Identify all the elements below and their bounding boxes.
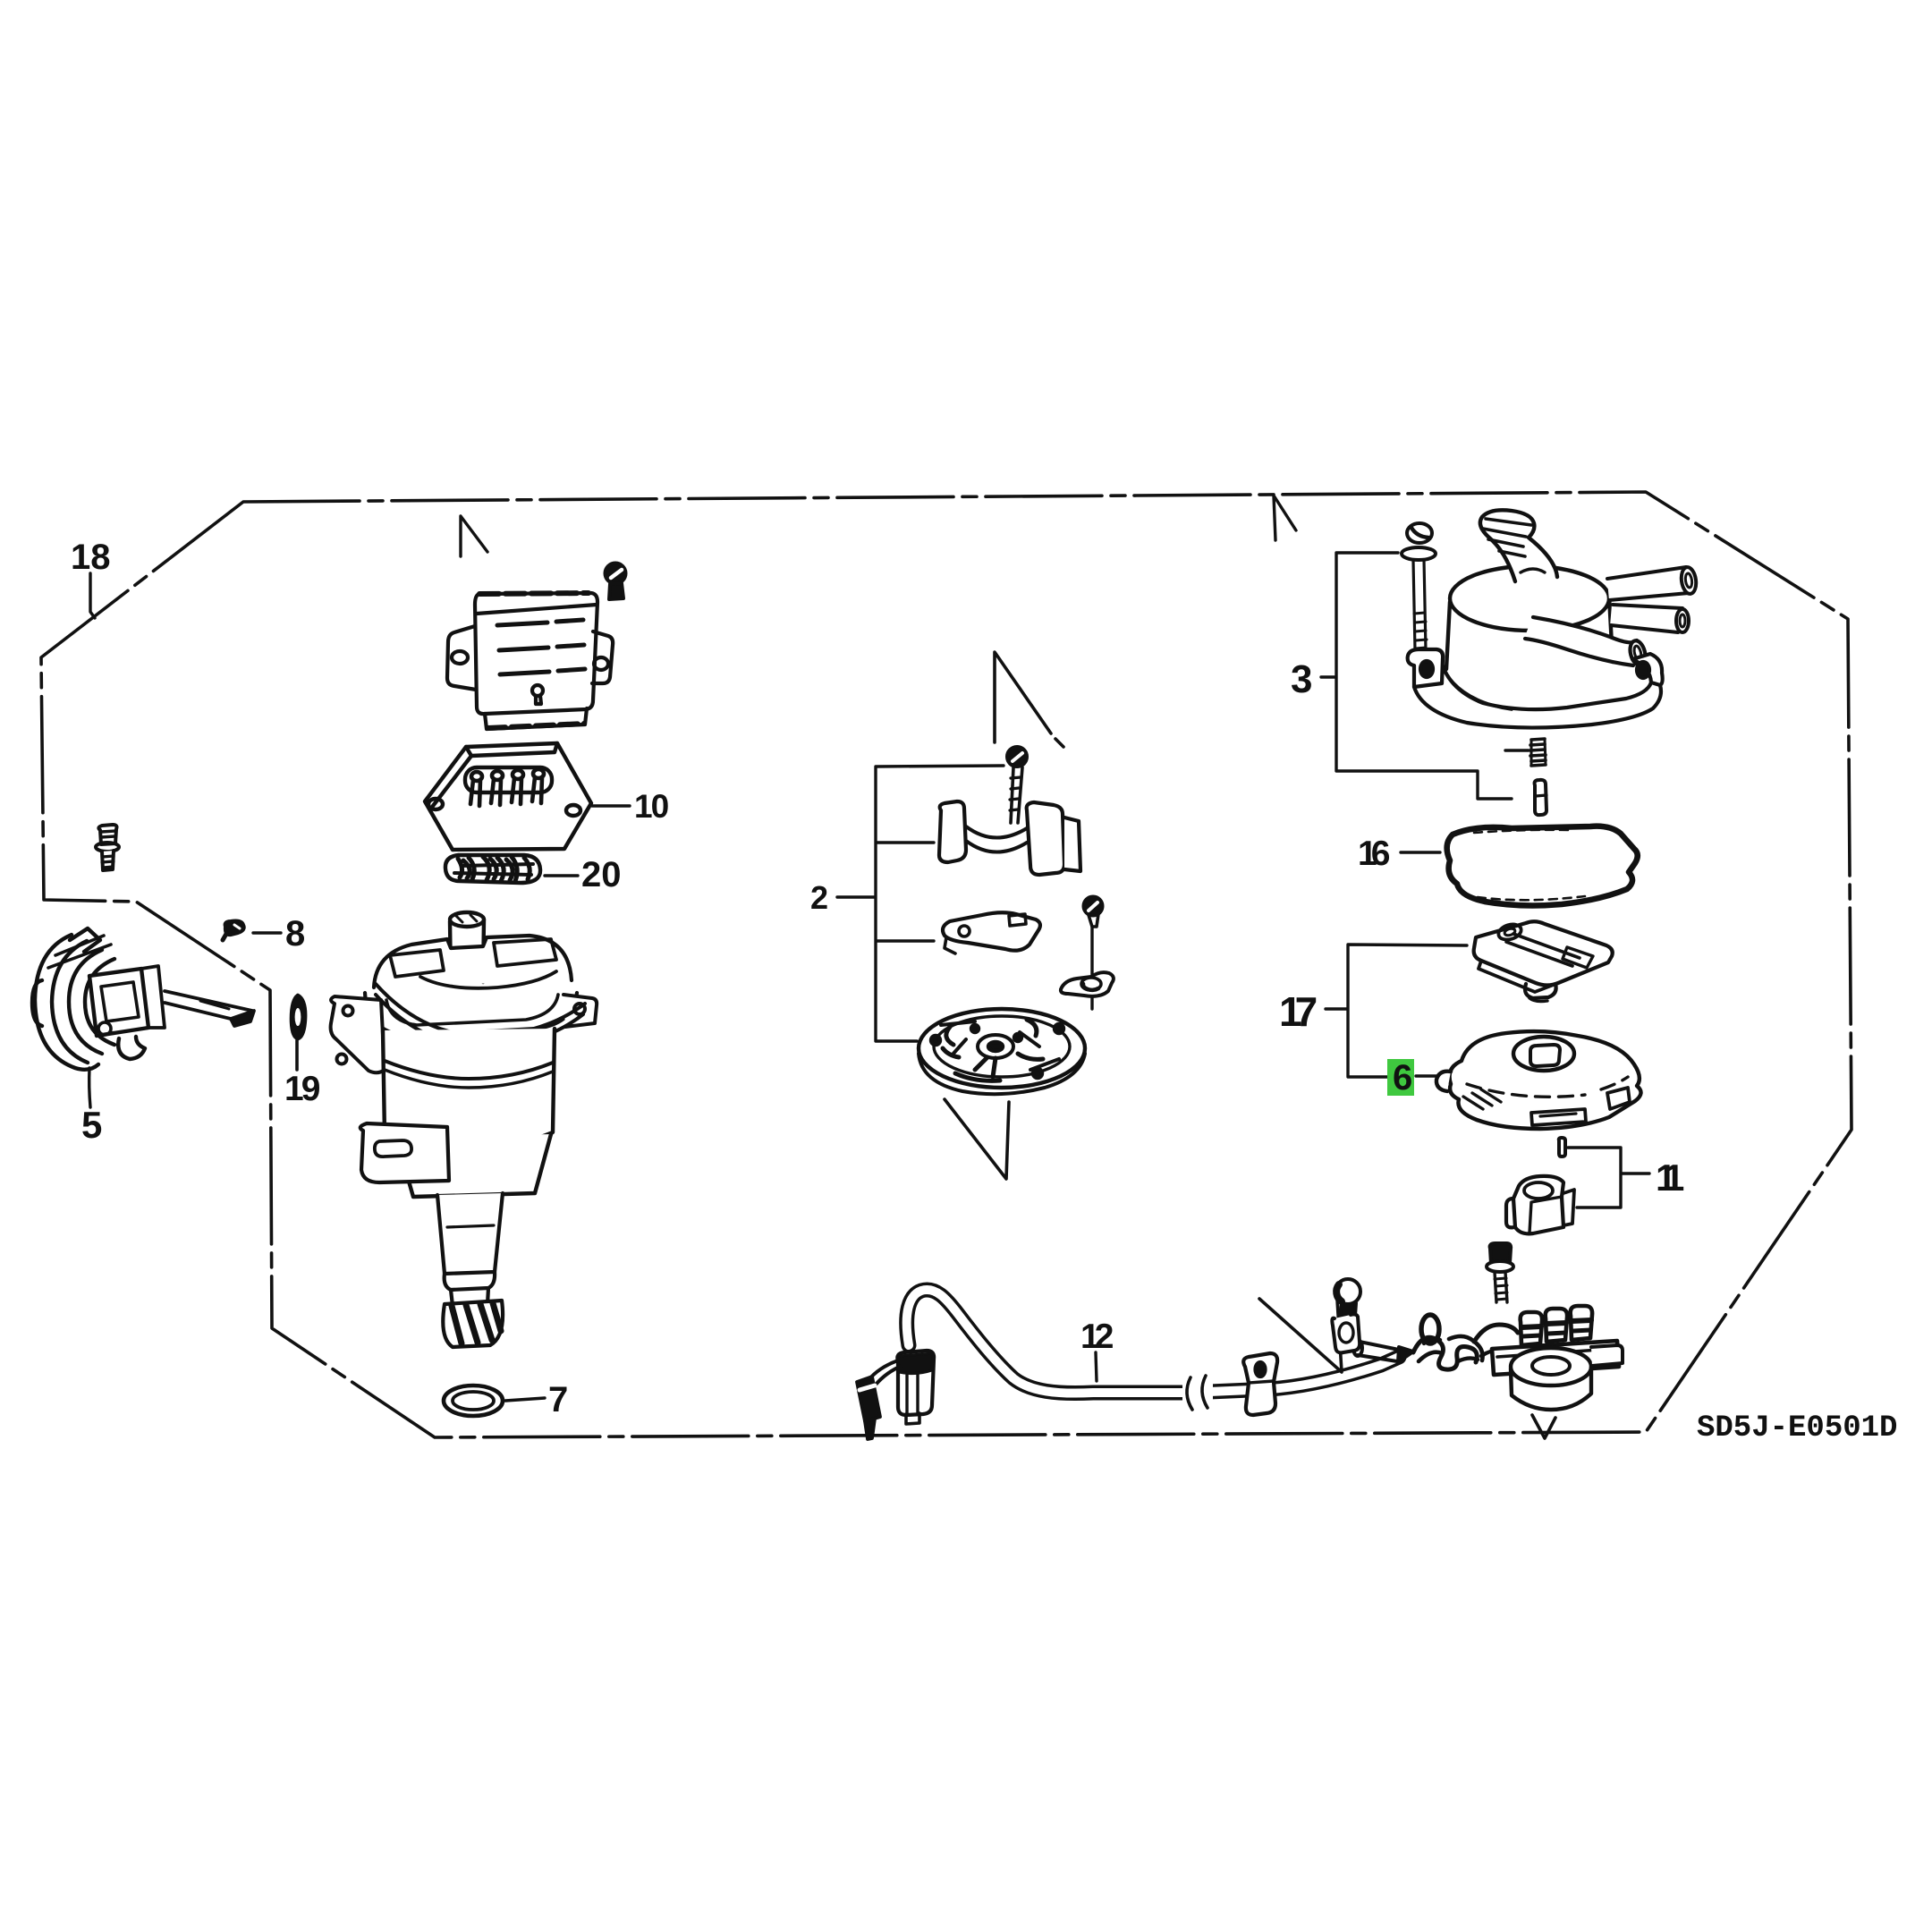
svg-text:18: 18 (71, 538, 111, 577)
svg-text:8: 8 (285, 914, 305, 953)
svg-text:3: 3 (1291, 657, 1312, 701)
svg-text:SD5J-E0501D: SD5J-E0501D (1697, 1411, 1897, 1445)
svg-text:2: 2 (810, 879, 828, 916)
svg-text:5: 5 (81, 1104, 102, 1146)
svg-text:6: 6 (1393, 1058, 1412, 1097)
svg-text:10: 10 (634, 788, 669, 825)
svg-text:20: 20 (581, 855, 622, 894)
svg-text:7: 7 (548, 1380, 568, 1419)
svg-text:19: 19 (284, 1070, 320, 1108)
svg-text:12: 12 (1080, 1318, 1114, 1356)
